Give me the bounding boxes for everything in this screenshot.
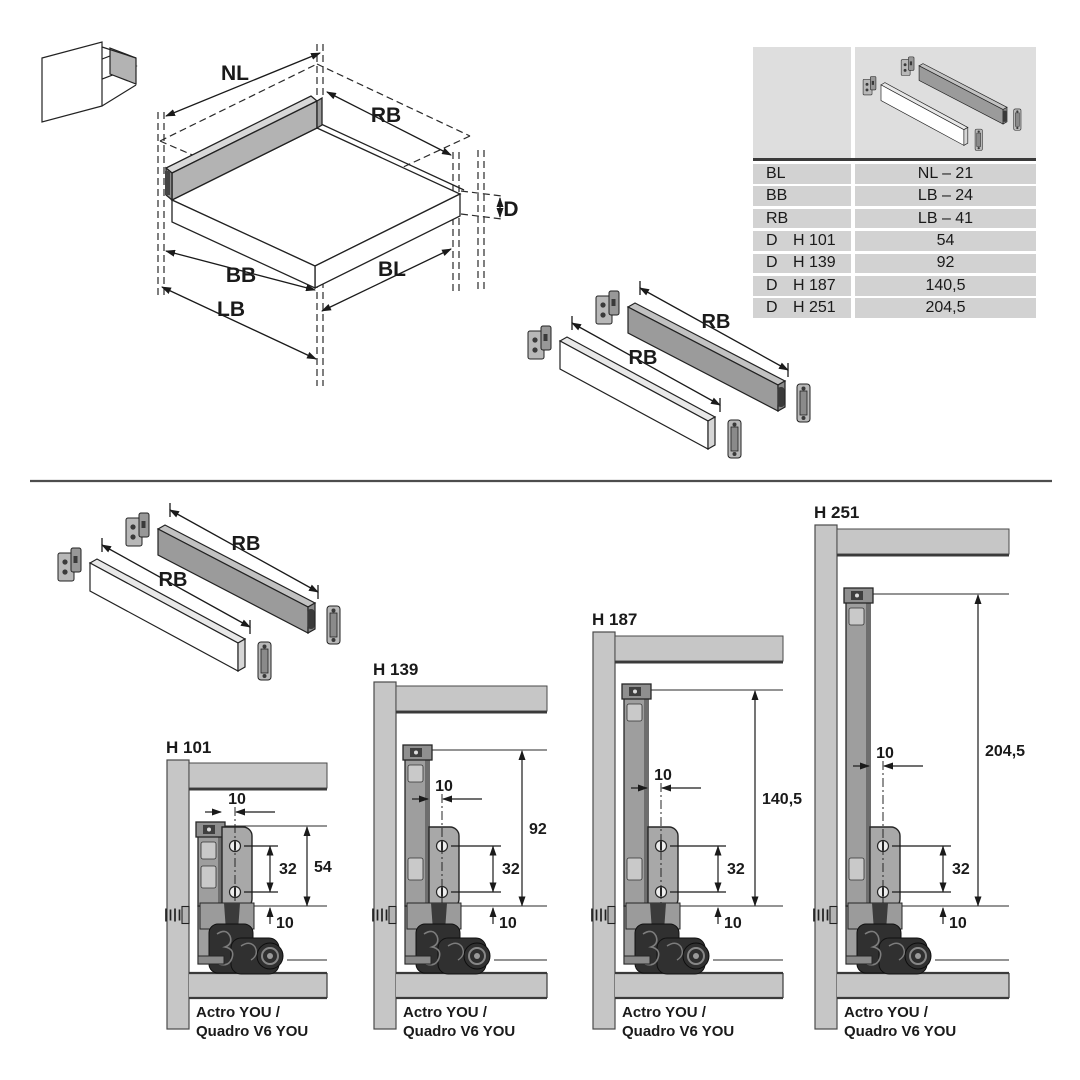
rail-dim-label: RB — [702, 311, 731, 333]
runner-system-label: Quadro V6 YOU — [196, 1023, 308, 1040]
runner-system-label: Actro YOU / — [196, 1004, 281, 1021]
table-header-rule — [753, 158, 1036, 161]
dim-hole-spacing: 32 — [279, 861, 297, 878]
runner-system-label: Actro YOU / — [403, 1004, 488, 1021]
table-row: DH 187 140,5 — [753, 276, 1036, 296]
dim-label-nl: NL — [221, 62, 249, 85]
dim-top-offset: 10 — [228, 791, 246, 808]
rail-dim-label: RB — [159, 569, 188, 591]
dim-label-bl: BL — [378, 258, 406, 281]
rear-bracket-plate — [222, 827, 252, 908]
dim-bottom-offset: 10 — [276, 915, 294, 932]
cabinet-top-rail — [837, 529, 1009, 554]
cabinet-side-panel — [374, 682, 396, 1029]
panel-h139: H 13910329210Actro YOU /Quadro V6 YOU — [373, 660, 547, 1040]
panel-title: H 139 — [373, 660, 418, 679]
runner-mechanism — [405, 903, 490, 974]
dim-hole-spacing: 32 — [502, 861, 520, 878]
dim-total-height: 54 — [314, 859, 332, 876]
table-row: DH 101 54 — [753, 231, 1036, 251]
runner-system-label: Actro YOU / — [622, 1004, 707, 1021]
cabinet-bottom-rail — [837, 973, 1009, 998]
table-row: BL NL – 21 — [753, 164, 1036, 184]
cabinet-bottom-rail — [189, 973, 327, 998]
runner-mechanism — [624, 903, 709, 974]
dim-label-rb: RB — [371, 104, 401, 127]
panel-title: H 251 — [814, 503, 859, 522]
cabinet-bottom-rail — [396, 973, 547, 998]
drawer-installation-diagram: NL RB BB BL LB D RB RB RB RB H 101103254… — [0, 0, 1080, 1080]
dim-hole-spacing: 32 — [952, 861, 970, 878]
dim-top-offset: 10 — [876, 745, 894, 762]
dim-label-lb: LB — [217, 298, 245, 321]
table-row: DH 139 92 — [753, 254, 1036, 274]
cabinet-side-panel — [593, 632, 615, 1029]
panel-h101: H 10110325410Actro YOU /Quadro V6 YOU — [166, 738, 332, 1040]
dim-label-d: D — [503, 198, 518, 221]
cabinet-top-rail — [396, 686, 547, 711]
dim-bottom-offset: 10 — [724, 915, 742, 932]
dim-hole-spacing: 32 — [727, 861, 745, 878]
rear-bracket-plate — [429, 827, 459, 908]
rails-exploded-bottom: RB RB — [58, 503, 340, 680]
dim-bottom-offset: 10 — [949, 915, 967, 932]
dim-bottom-offset: 10 — [499, 915, 517, 932]
table-row: RB LB – 41 — [753, 209, 1036, 229]
runner-system-label: Quadro V6 YOU — [403, 1023, 515, 1040]
cabinet-side-panel — [815, 525, 837, 1029]
runner-system-label: Actro YOU / — [844, 1004, 929, 1021]
panel-title: H 101 — [166, 738, 211, 757]
runner-mechanism — [846, 903, 931, 974]
panel-h187: H 1871032140,510Actro YOU /Quadro V6 YOU — [592, 610, 802, 1040]
cabinet-top-rail — [615, 636, 783, 661]
rail-dim-label: RB — [232, 533, 261, 555]
dimension-table: BL NL – 21 BB LB – 24 RB LB – 41 DH 101 … — [753, 47, 1036, 321]
table-row: BB LB – 24 — [753, 186, 1036, 206]
table-row: DH 251 204,5 — [753, 298, 1036, 318]
table-illustration — [753, 47, 1036, 158]
cabinet-top-rail — [189, 763, 327, 788]
isometric-drawer-drawing: NL RB BB BL LB D — [158, 44, 519, 386]
dim-top-offset: 10 — [654, 767, 672, 784]
dim-total-height: 92 — [529, 821, 547, 838]
rear-bracket-plate — [870, 827, 900, 908]
cabinet-bottom-rail — [615, 973, 783, 998]
panel-h251: H 2511032204,510Actro YOU /Quadro V6 YOU — [814, 503, 1025, 1040]
cabinet-side-panel — [167, 760, 189, 1029]
rear-bracket-plate — [648, 827, 678, 908]
rail-dim-label: RB — [629, 347, 658, 369]
panel-title: H 187 — [592, 610, 637, 629]
runner-system-label: Quadro V6 YOU — [622, 1023, 734, 1040]
dim-label-bb: BB — [226, 264, 256, 287]
runner-system-label: Quadro V6 YOU — [844, 1023, 956, 1040]
drawer-icon — [42, 42, 136, 122]
dim-total-height: 204,5 — [985, 743, 1025, 760]
table-rails-illustration — [753, 47, 1036, 158]
dim-total-height: 140,5 — [762, 791, 802, 808]
dim-top-offset: 10 — [435, 778, 453, 795]
